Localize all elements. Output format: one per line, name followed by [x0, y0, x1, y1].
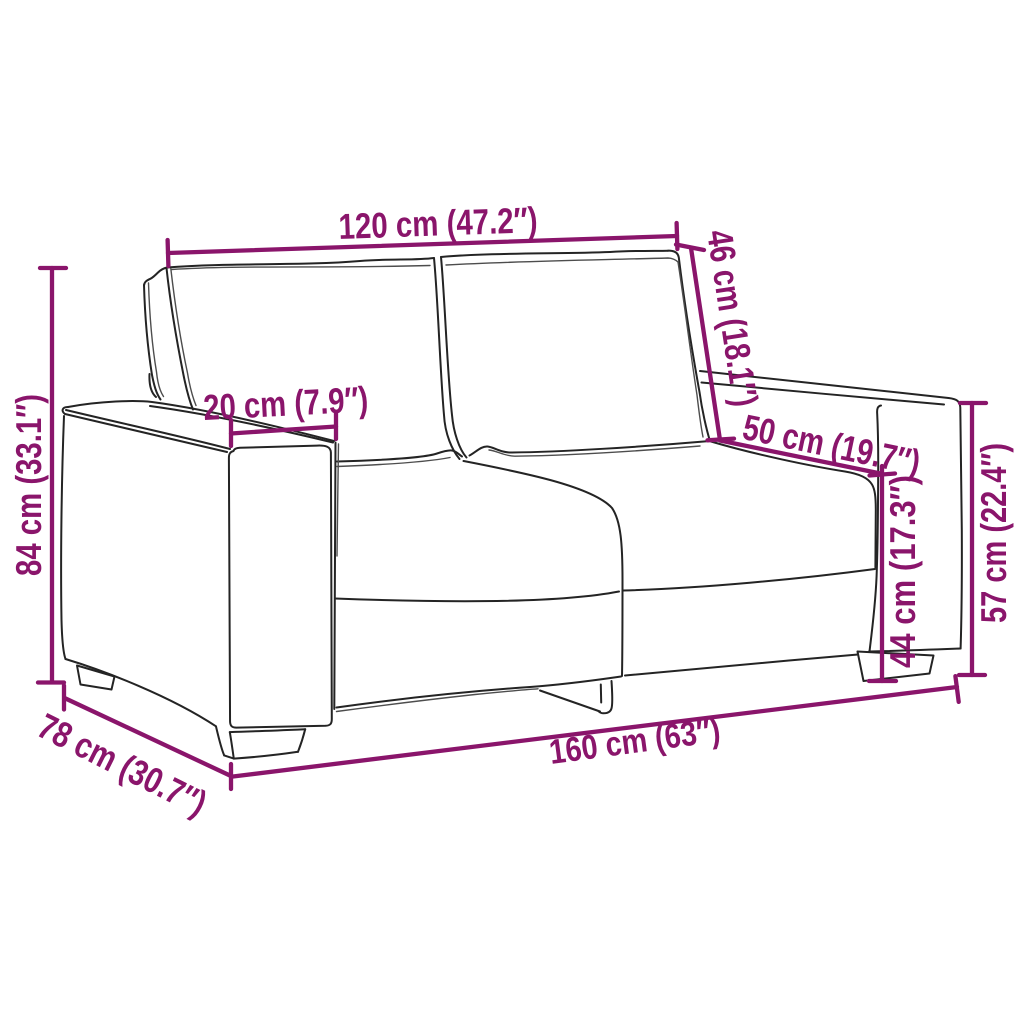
svg-text:44 cm (17.3″): 44 cm (17.3″): [882, 475, 923, 668]
svg-text:120 cm (47.2″): 120 cm (47.2″): [338, 199, 538, 247]
svg-text:57 cm (22.4″): 57 cm (22.4″): [973, 443, 1014, 623]
svg-text:84 cm (33.1″): 84 cm (33.1″): [8, 394, 49, 576]
svg-text:20 cm (7.9″): 20 cm (7.9″): [202, 378, 369, 428]
